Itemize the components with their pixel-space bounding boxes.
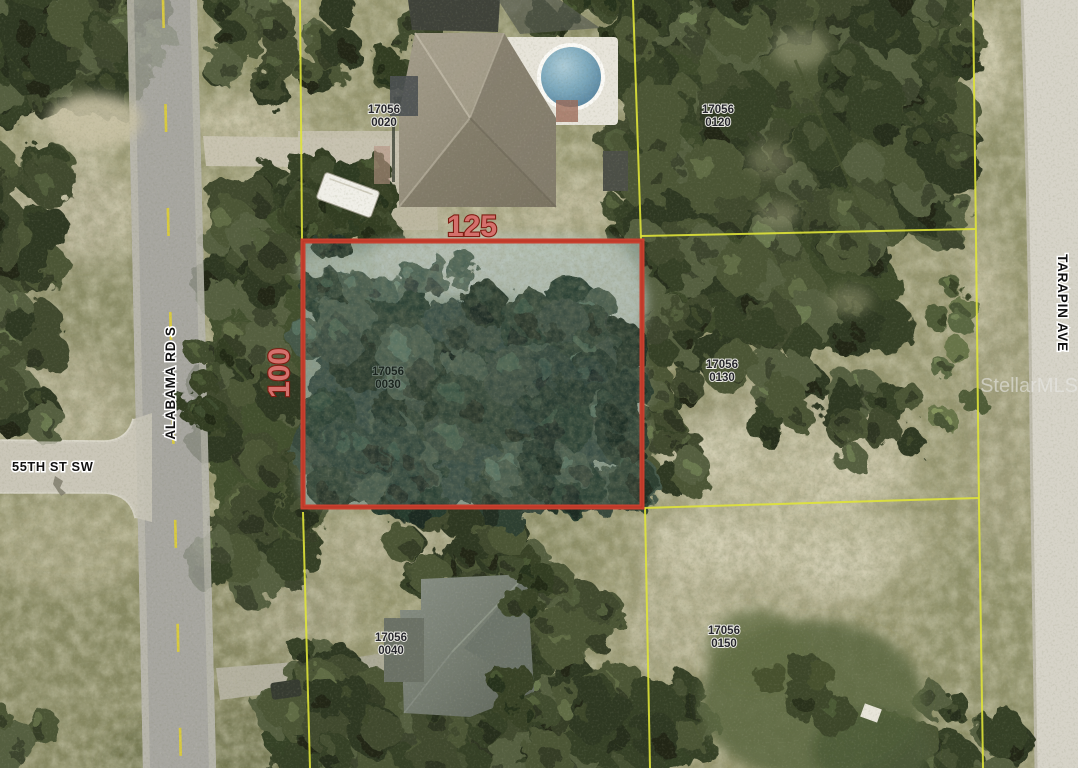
svg-text:ALABAMA RD S: ALABAMA RD S xyxy=(163,326,178,439)
svg-text:TARAPIN AVE: TARAPIN AVE xyxy=(1055,254,1070,352)
svg-text:0120: 0120 xyxy=(705,117,731,129)
svg-text:0030: 0030 xyxy=(375,379,401,391)
svg-text:0020: 0020 xyxy=(371,117,397,129)
svg-text:0130: 0130 xyxy=(709,372,735,384)
svg-text:125: 125 xyxy=(447,210,497,243)
svg-text:17056: 17056 xyxy=(708,625,740,637)
svg-text:100: 100 xyxy=(263,348,296,398)
svg-text:0040: 0040 xyxy=(378,645,404,657)
svg-text:55TH ST SW: 55TH ST SW xyxy=(12,459,94,474)
svg-text:17056: 17056 xyxy=(372,366,404,378)
svg-text:17056: 17056 xyxy=(368,104,400,116)
svg-text:0150: 0150 xyxy=(711,638,737,650)
svg-text:17056: 17056 xyxy=(375,632,407,644)
svg-text:StellarMLS: StellarMLS xyxy=(980,375,1078,397)
svg-text:17056: 17056 xyxy=(702,104,734,116)
svg-text:17056: 17056 xyxy=(706,359,738,371)
